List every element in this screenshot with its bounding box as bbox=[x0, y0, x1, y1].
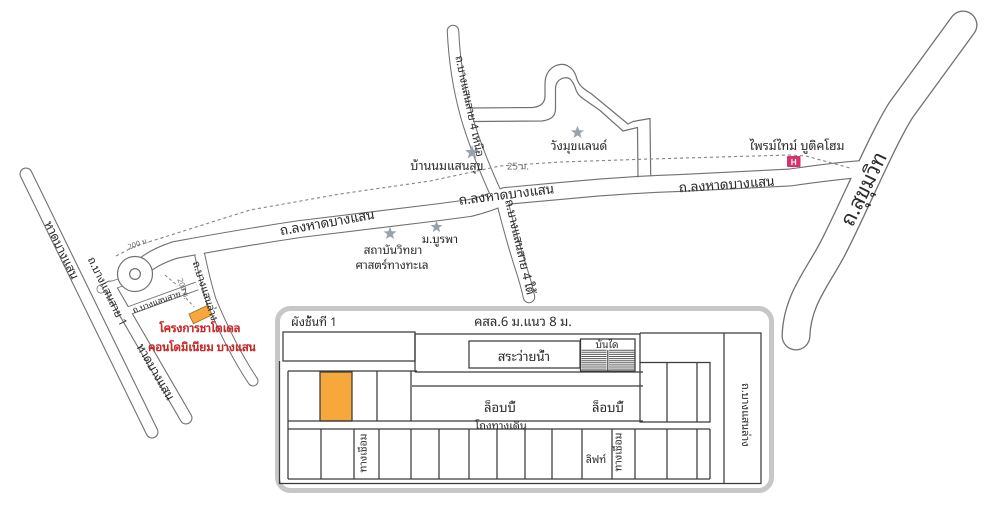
svg-text:H: H bbox=[791, 158, 797, 167]
